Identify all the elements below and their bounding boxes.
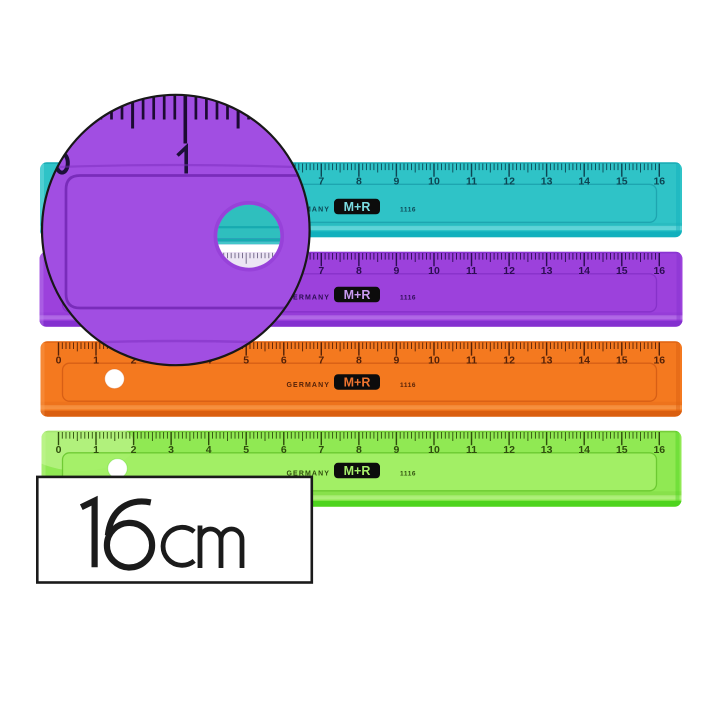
svg-text:0: 0 (56, 444, 62, 456)
svg-text:14: 14 (578, 444, 590, 456)
svg-text:7: 7 (318, 355, 324, 367)
svg-text:0: 0 (56, 355, 62, 367)
svg-text:13: 13 (541, 176, 553, 188)
svg-text:12: 12 (503, 355, 515, 367)
svg-text:10: 10 (428, 444, 440, 456)
svg-text:15: 15 (616, 444, 628, 456)
svg-text:1: 1 (93, 444, 99, 456)
svg-text:7: 7 (318, 444, 324, 456)
svg-text:1116: 1116 (400, 471, 416, 478)
svg-text:1116: 1116 (400, 382, 416, 389)
svg-text:M+R: M+R (344, 288, 371, 302)
svg-text:M+R: M+R (344, 200, 371, 214)
svg-text:M+R: M+R (344, 464, 371, 478)
svg-text:14: 14 (578, 355, 590, 367)
svg-text:9: 9 (393, 265, 399, 277)
svg-text:9: 9 (393, 355, 399, 367)
svg-text:11: 11 (466, 355, 477, 367)
svg-text:8: 8 (356, 444, 362, 456)
svg-text:4: 4 (206, 444, 212, 456)
svg-text:13: 13 (541, 265, 553, 277)
svg-text:8: 8 (356, 265, 362, 277)
svg-text:9: 9 (393, 176, 399, 188)
svg-text:5: 5 (243, 444, 249, 456)
svg-text:16: 16 (653, 444, 665, 456)
svg-text:1: 1 (93, 355, 99, 367)
svg-text:16: 16 (653, 355, 665, 367)
svg-text:M+R: M+R (344, 376, 371, 390)
svg-text:10: 10 (428, 265, 440, 277)
svg-text:12: 12 (503, 265, 515, 277)
svg-text:11: 11 (466, 265, 477, 277)
svg-text:5: 5 (243, 355, 249, 367)
svg-text:11: 11 (466, 176, 477, 188)
svg-text:10: 10 (428, 176, 440, 188)
svg-text:7: 7 (318, 176, 324, 188)
svg-text:14: 14 (578, 176, 590, 188)
svg-text:11: 11 (466, 444, 477, 456)
svg-text:1116: 1116 (400, 207, 416, 214)
svg-text:6: 6 (281, 444, 287, 456)
svg-text:6: 6 (281, 355, 287, 367)
svg-text:16: 16 (653, 265, 665, 277)
svg-text:8: 8 (356, 355, 362, 367)
svg-text:15: 15 (616, 265, 628, 277)
svg-text:9: 9 (393, 444, 399, 456)
svg-text:15: 15 (616, 176, 628, 188)
svg-text:12: 12 (503, 176, 515, 188)
svg-text:15: 15 (616, 355, 628, 367)
svg-text:14: 14 (578, 265, 590, 277)
svg-text:16: 16 (653, 176, 665, 188)
svg-text:13: 13 (541, 444, 553, 456)
svg-text:3: 3 (168, 444, 174, 456)
svg-text:7: 7 (318, 265, 324, 277)
svg-text:1116: 1116 (400, 295, 416, 302)
svg-text:10: 10 (428, 355, 440, 367)
svg-text:12: 12 (503, 444, 515, 456)
svg-text:GERMANY: GERMANY (287, 382, 330, 389)
svg-text:2: 2 (131, 444, 137, 456)
svg-text:8: 8 (356, 176, 362, 188)
svg-text:13: 13 (541, 355, 553, 367)
